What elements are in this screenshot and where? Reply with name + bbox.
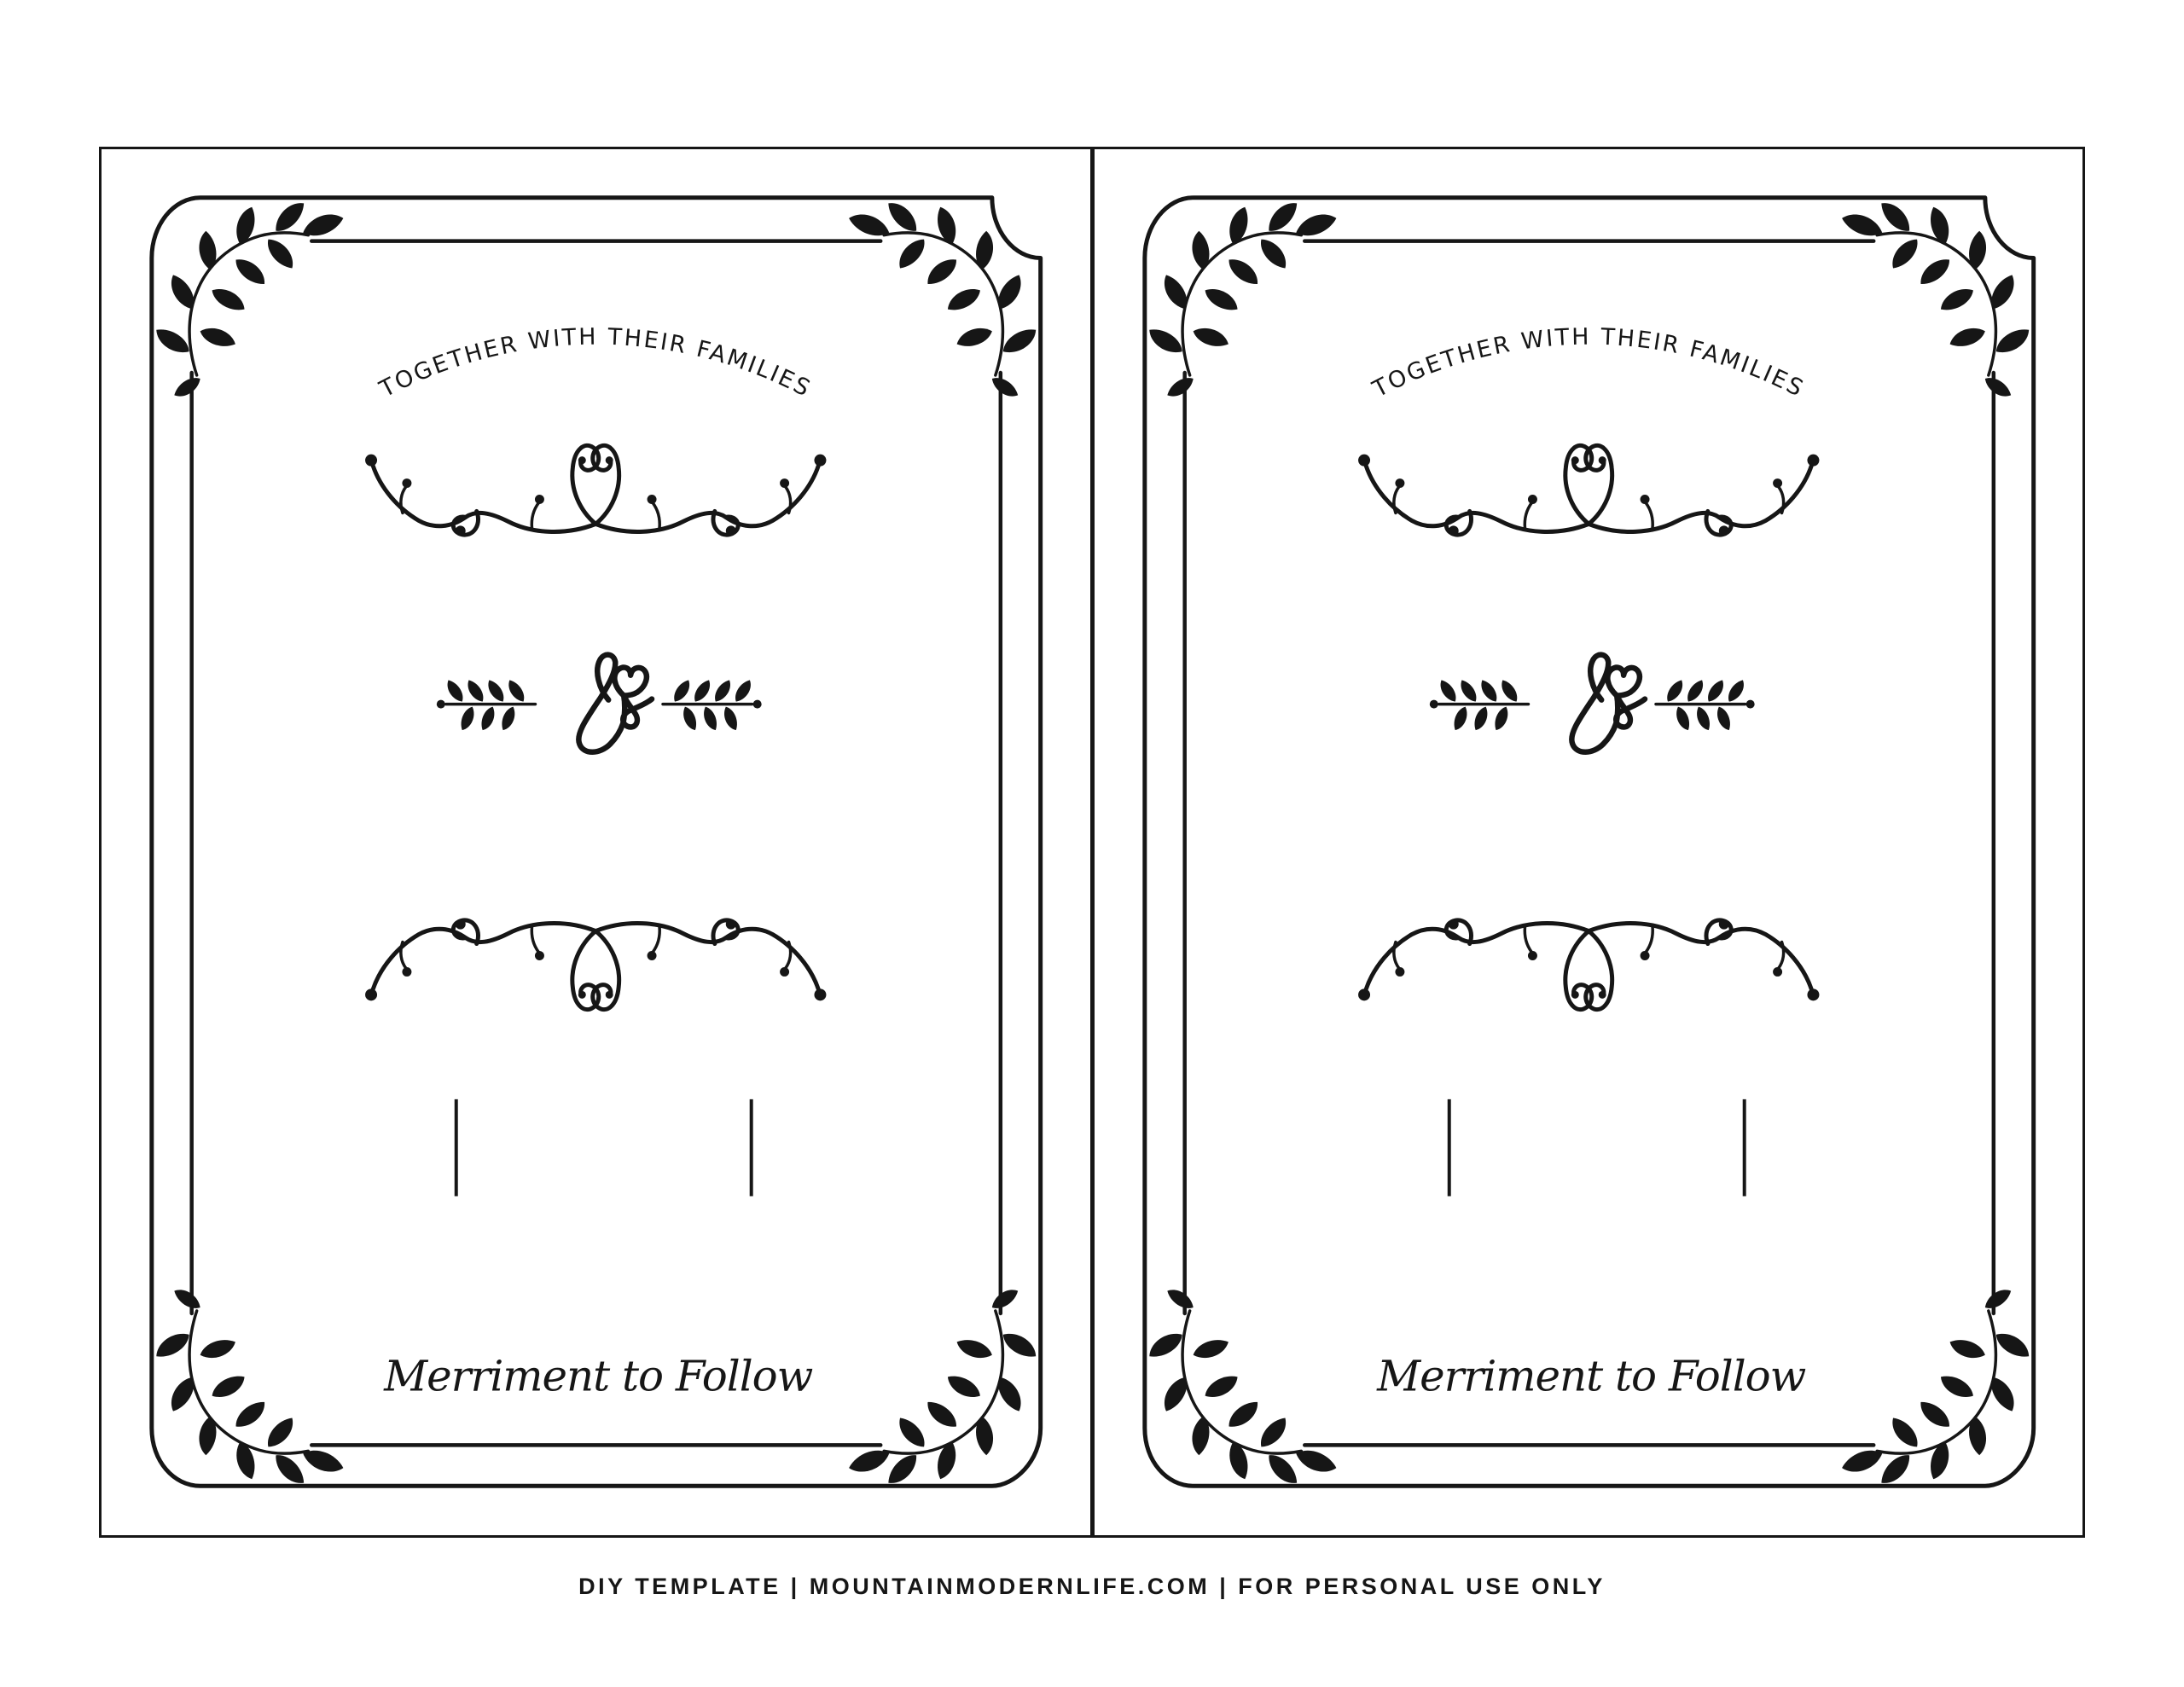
inner-frame xyxy=(1184,241,1993,1446)
vine-flourish-icon xyxy=(365,445,826,536)
card-art-right: TOGETHER WITH THEIR FAMILIES Merriment t… xyxy=(1095,149,2083,1535)
ampersand-heart-icon xyxy=(1571,655,1645,752)
arched-title: TOGETHER WITH THEIR FAMILIES xyxy=(375,324,816,403)
ampersand-heart-icon xyxy=(578,655,652,752)
leaf-branch-icon xyxy=(1145,198,2033,1488)
script-caption: Merriment to Follow xyxy=(1376,1352,1806,1401)
inner-frame xyxy=(192,241,1001,1446)
card-art-left: TOGETHER WITH THEIR FAMILIES Merriment t… xyxy=(102,149,1090,1535)
footer-credit-text: DIY TEMPLATE | MOUNTAINMODERNLIFE.COM | … xyxy=(0,1569,2184,1603)
write-in-lines xyxy=(456,1099,752,1197)
template-sheet: TOGETHER WITH THEIR FAMILIES Merriment t… xyxy=(99,147,2085,1538)
leaf-branch-icon xyxy=(152,198,1040,1488)
script-caption: Merriment to Follow xyxy=(383,1352,813,1401)
vine-flourish-icon xyxy=(1358,919,1819,1010)
vine-flourish-icon xyxy=(365,919,826,1010)
invitation-card-right: TOGETHER WITH THEIR FAMILIES Merriment t… xyxy=(1090,149,2083,1535)
invitation-card-left: TOGETHER WITH THEIR FAMILIES Merriment t… xyxy=(102,149,1090,1535)
write-in-lines xyxy=(1449,1099,1744,1197)
arched-title: TOGETHER WITH THEIR FAMILIES xyxy=(1368,324,1809,403)
ticket-border xyxy=(152,198,1041,1486)
vine-flourish-icon xyxy=(1358,445,1819,536)
printable-sheet-page: { "page": { "background": "#ffffff", "in… xyxy=(0,0,2184,1687)
ticket-border xyxy=(1144,198,2033,1486)
